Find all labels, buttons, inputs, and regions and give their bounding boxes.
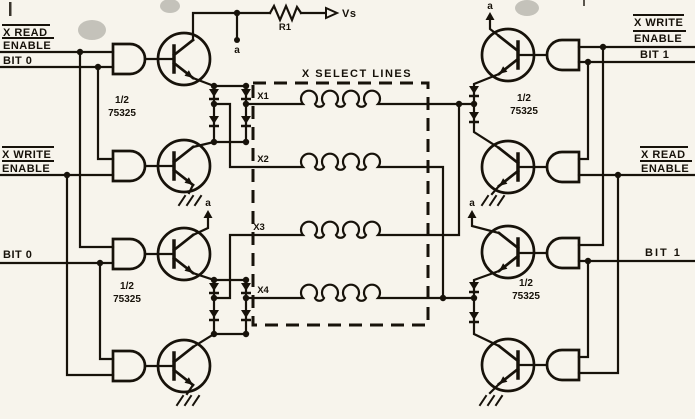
enable-label-right-mid: ENABLE (641, 163, 689, 175)
x-read-label-right: X READ (641, 149, 686, 161)
memory-driver-schematic: R1 Vs a X READ ENABLE BIT 0 X WRITE ENAB… (0, 0, 695, 419)
clamp-arrow-right-mid (468, 210, 477, 218)
select-line-x4 (246, 285, 474, 301)
and-gate-left-4 (113, 351, 145, 381)
scan-smudge (78, 20, 106, 40)
ground-symbol-q2r (482, 196, 504, 205)
junction-dot (211, 295, 217, 301)
ic-75325-label-left-bottom: 75325 (113, 294, 141, 305)
ic-half-label-right-top: 1/2 (517, 93, 531, 104)
branch-bit0-to-gate4 (100, 263, 113, 359)
junction-dot (585, 59, 591, 65)
scan-smudge (515, 0, 539, 16)
and-gate-right-4 (547, 350, 579, 380)
junction-dot (211, 277, 217, 283)
ic-75325-label-right-bottom: 75325 (512, 291, 540, 302)
junction-dot (77, 49, 83, 55)
junction-dot (243, 331, 249, 337)
ground-symbol-q4r (480, 396, 502, 405)
select-line-x3-label: X3 (253, 222, 265, 233)
junction-dot (585, 258, 591, 264)
ic-75325-label-left-top: 75325 (108, 108, 136, 119)
and-gate-right-1 (547, 40, 579, 70)
enable-label-left-top: ENABLE (3, 40, 51, 52)
and-gate-left-3 (113, 239, 145, 269)
clamp-node-label-right-top: a (487, 1, 493, 12)
and-gate-left-1 (113, 44, 145, 74)
resistor-r1-label: R1 (279, 22, 292, 33)
select-lines-title: X SELECT LINES (302, 68, 412, 80)
branch-write-to-gate3r (579, 47, 603, 245)
junction-dot (243, 83, 249, 89)
junction-dot (64, 172, 70, 178)
branch-bit1-to-gate2r (579, 62, 588, 159)
clamp-arrow-right-top (486, 12, 495, 20)
bit0-top-label: BIT 0 (3, 55, 32, 67)
junction-dot (243, 277, 249, 283)
supply-vs-label: Vs (342, 8, 356, 20)
bit0-bottom-label: BIT 0 (3, 249, 32, 261)
diode-column-right-top (474, 74, 499, 148)
junction-dot (211, 331, 217, 337)
branch-read-to-gate3 (80, 52, 113, 247)
q4-collector-lead (193, 334, 214, 347)
scan-speckle (583, 0, 585, 6)
junction-dot (211, 101, 217, 107)
junction-dot (95, 64, 101, 70)
junction-dot (243, 101, 249, 107)
branch-bit1-to-gate4r (579, 261, 588, 357)
junction-dot (615, 172, 621, 178)
bit1-top-label: BIT 1 (640, 49, 669, 61)
ground-symbol-q2 (179, 196, 201, 205)
select-line-x1 (246, 91, 474, 107)
power-rail-wire (193, 13, 270, 40)
supply-arrow-icon (326, 8, 337, 18)
select-line-x2-label: X2 (257, 154, 269, 165)
enable-label-left-mid: ENABLE (2, 163, 50, 175)
and-gate-right-3 (547, 238, 579, 268)
resistor-r1-symbol (270, 6, 301, 20)
scan-speckle (9, 2, 12, 16)
and-gate-right-2 (547, 152, 579, 182)
junction-dot (440, 295, 446, 301)
branch-read-to-gate4r (579, 175, 618, 373)
enable-label-right-top: ENABLE (634, 33, 682, 45)
clamp-node-terminal (234, 37, 240, 43)
x-write-label-left: X WRITE (2, 149, 51, 161)
clamp-node-label: a (234, 45, 240, 56)
clamp-node-label-right-mid: a (469, 198, 475, 209)
clamp-arrow-left-mid (204, 210, 213, 218)
branch-write-to-gate4 (67, 175, 113, 375)
junction-dot (600, 44, 606, 50)
x-write-label-right: X WRITE (634, 17, 683, 29)
select-line-x4-label: X4 (257, 285, 269, 296)
select-line-x1-label: X1 (257, 91, 269, 102)
schematic-page: R1 Vs a X READ ENABLE BIT 0 X WRITE ENAB… (0, 0, 695, 419)
bit1-bottom-label: BIT 1 (645, 247, 682, 259)
clamp-node-label-left-mid: a (205, 198, 211, 209)
select-line-x3 (214, 104, 459, 298)
ground-symbol-q4 (177, 396, 199, 405)
junction-dot (243, 295, 249, 301)
ic-75325-label-right-top: 75325 (510, 106, 538, 117)
ic-half-label-left-bottom: 1/2 (120, 281, 134, 292)
and-gate-left-2 (113, 151, 145, 181)
junction-dot (471, 295, 477, 301)
junction-dot (471, 101, 477, 107)
select-lines-dashed-box (253, 83, 428, 325)
ic-half-label-right-bottom: 1/2 (519, 278, 533, 289)
junction-dot (243, 139, 249, 145)
junction-dot (456, 101, 462, 107)
junction-dot (97, 260, 103, 266)
junction-dot (211, 139, 217, 145)
q3-collector-lead (193, 218, 208, 235)
select-line-x2 (214, 104, 443, 298)
scan-smudge (160, 0, 180, 13)
junction-dot (234, 10, 240, 16)
ic-half-label-left-top: 1/2 (115, 95, 129, 106)
junction-dot (211, 83, 217, 89)
